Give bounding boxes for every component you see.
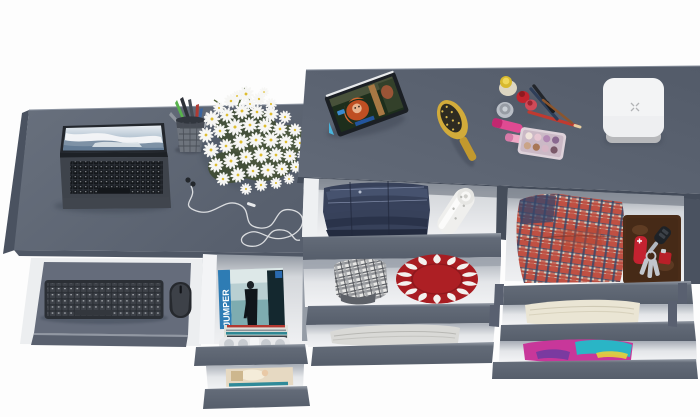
svg-text:JUMPER: JUMPER <box>221 289 232 327</box>
